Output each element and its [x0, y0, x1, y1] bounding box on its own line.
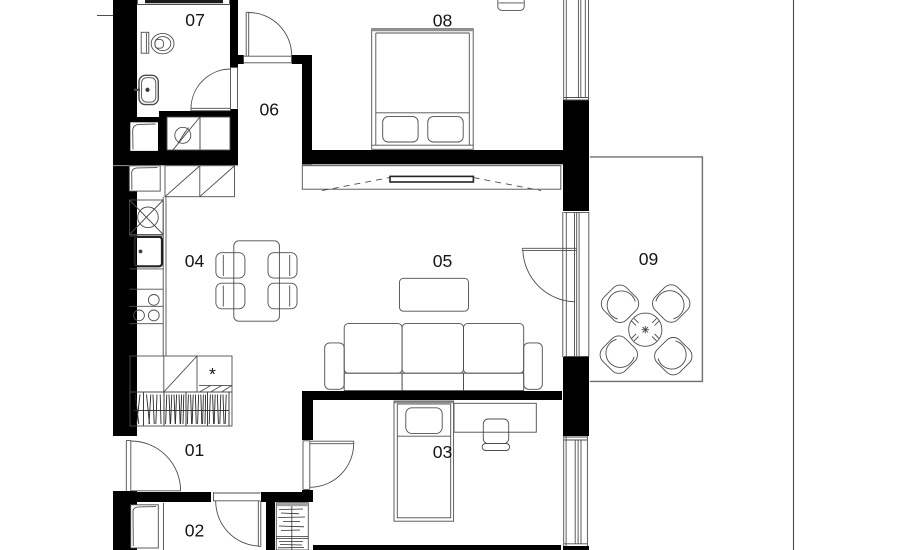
svg-text:08: 08 — [433, 11, 453, 31]
svg-text:07: 07 — [185, 10, 205, 30]
svg-text:09: 09 — [639, 249, 659, 269]
svg-text:01: 01 — [185, 440, 205, 460]
svg-text:04: 04 — [185, 251, 205, 271]
svg-text:06: 06 — [260, 100, 280, 120]
svg-text:03: 03 — [433, 442, 453, 462]
svg-text:*: * — [209, 364, 216, 384]
svg-text:02: 02 — [185, 521, 205, 541]
svg-text:05: 05 — [433, 251, 453, 271]
